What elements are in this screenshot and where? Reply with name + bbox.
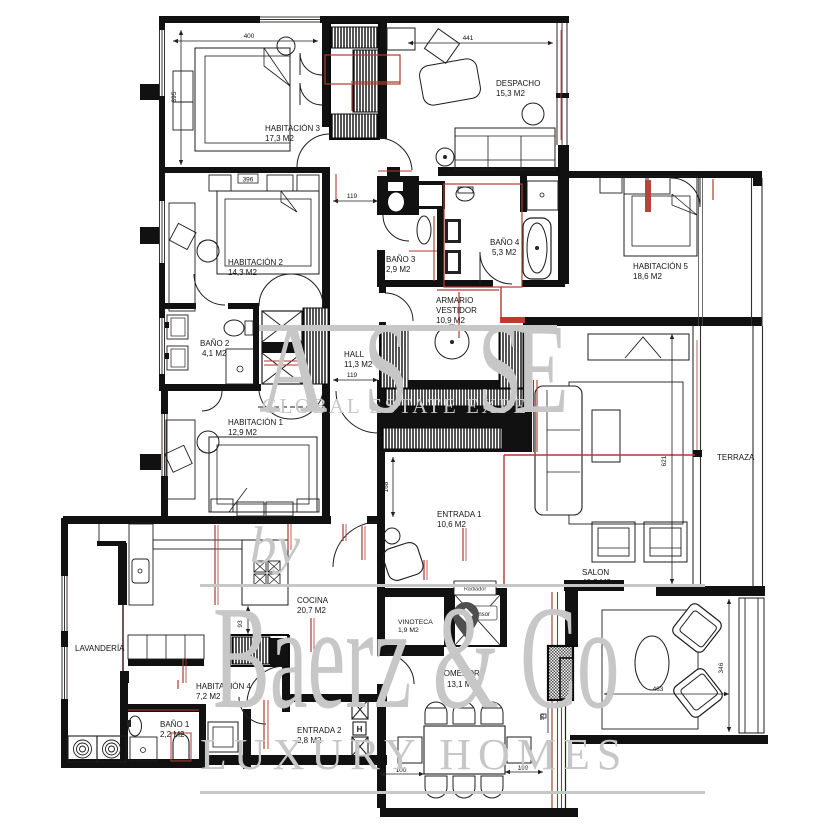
svg-text:2,2 M2: 2,2 M2 [160, 730, 185, 739]
svg-text:HABITACIÓN 3: HABITACIÓN 3 [265, 124, 321, 133]
svg-text:BAÑO 2: BAÑO 2 [200, 339, 230, 348]
svg-text:396: 396 [243, 177, 254, 184]
svg-text:HALL: HALL [344, 350, 365, 359]
svg-text:GLOBAL ESTATE EXPE: GLOBAL ESTATE EXPE [262, 394, 529, 418]
svg-text:HABITACIÓN 5: HABITACIÓN 5 [633, 262, 689, 271]
svg-text:4,1 M2: 4,1 M2 [202, 349, 227, 358]
svg-text:VESTIDOR: VESTIDOR [436, 306, 477, 315]
svg-text:10,9 M2: 10,9 M2 [436, 316, 465, 325]
svg-text:LUXURY HOMES: LUXURY HOMES [200, 730, 628, 779]
svg-text:12,9 M2: 12,9 M2 [228, 428, 257, 437]
svg-text:168: 168 [383, 481, 390, 492]
svg-text:441: 441 [463, 35, 474, 42]
svg-text:14,3 M2: 14,3 M2 [228, 268, 257, 277]
svg-text:BAÑO 4: BAÑO 4 [490, 238, 520, 247]
svg-text:DESPACHO: DESPACHO [496, 79, 540, 88]
svg-text:ENTRADA 1: ENTRADA 1 [437, 510, 482, 519]
svg-text:395: 395 [171, 91, 178, 102]
svg-text:HABITACIÓN 2: HABITACIÓN 2 [228, 258, 284, 267]
svg-text:119: 119 [347, 193, 358, 200]
svg-text:5,3 M2: 5,3 M2 [492, 248, 517, 257]
svg-text:ARMARIO: ARMARIO [436, 296, 473, 305]
svg-text:BAÑO 3: BAÑO 3 [386, 255, 416, 264]
svg-text:17,3 M2: 17,3 M2 [265, 134, 294, 143]
svg-text:2,9 M2: 2,9 M2 [386, 265, 411, 274]
svg-text:by: by [250, 517, 301, 575]
svg-text:346: 346 [718, 662, 725, 673]
svg-text:18,6 M2: 18,6 M2 [633, 272, 662, 281]
svg-text:LAVANDERÍA: LAVANDERÍA [75, 644, 125, 653]
svg-text:400: 400 [244, 33, 255, 40]
svg-text:463: 463 [653, 686, 664, 693]
svg-text:TERRAZA: TERRAZA [717, 453, 755, 462]
svg-text:15,3 M2: 15,3 M2 [496, 89, 525, 98]
svg-text:E: E [514, 298, 569, 439]
svg-text:621: 621 [661, 455, 668, 466]
svg-text:10,6 M2: 10,6 M2 [437, 520, 466, 529]
svg-text:119: 119 [347, 372, 358, 379]
svg-text:Baerz & Co: Baerz & Co [213, 576, 619, 740]
svg-text:BAÑO 1: BAÑO 1 [160, 720, 190, 729]
svg-text:S: S [364, 299, 408, 441]
svg-text:A: A [259, 299, 327, 440]
